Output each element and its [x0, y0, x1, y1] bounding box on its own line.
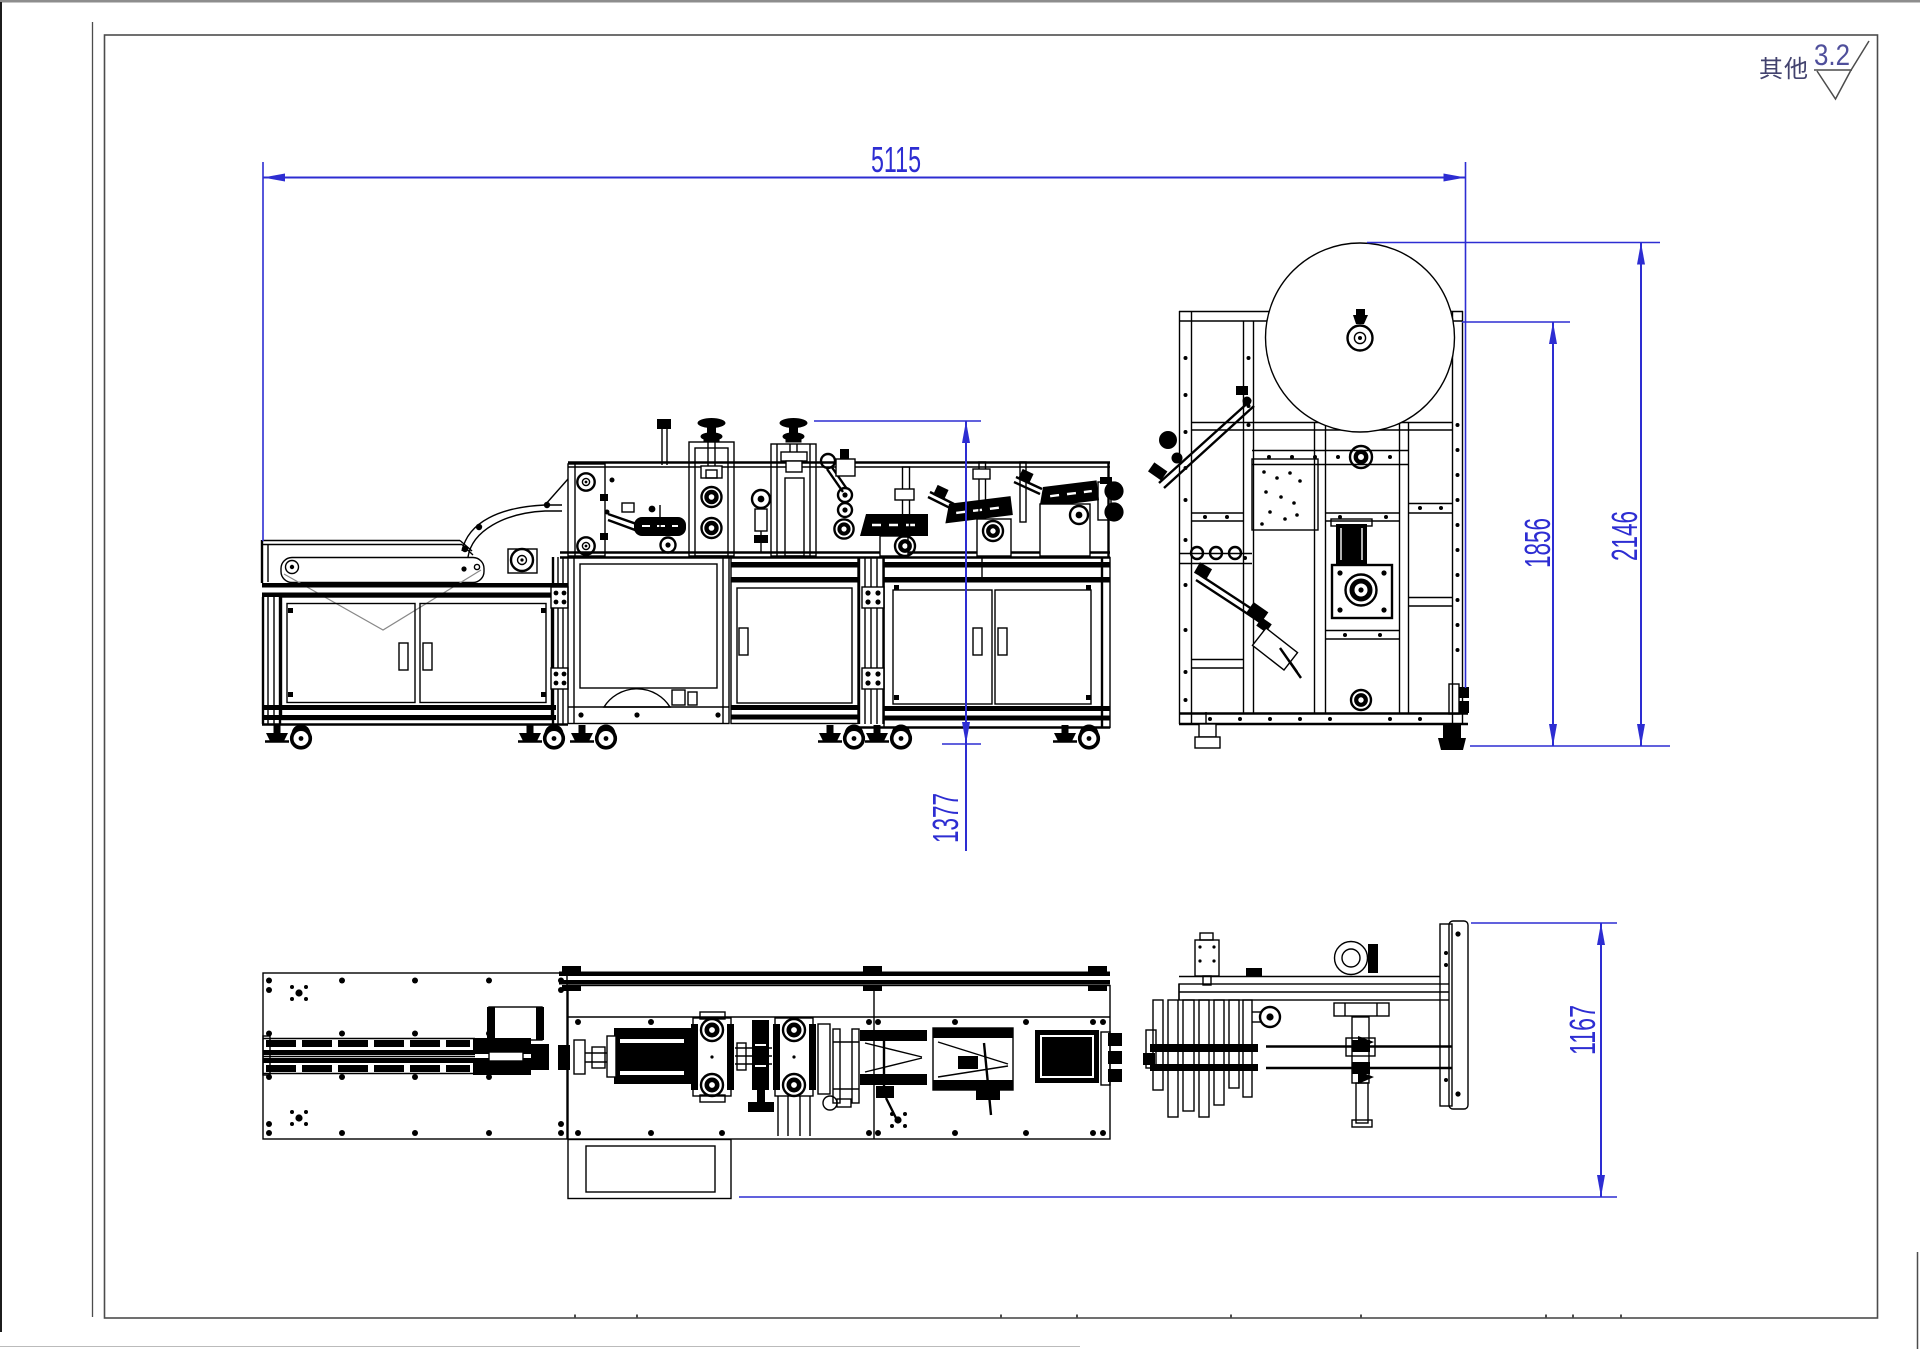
svg-text:2146: 2146 [1604, 511, 1645, 561]
svg-text:5115: 5115 [871, 139, 921, 180]
svg-text:3.2: 3.2 [1814, 39, 1850, 72]
svg-text:其他: 其他 [1759, 56, 1809, 83]
svg-text:1856: 1856 [1517, 518, 1558, 568]
svg-text:1377: 1377 [925, 793, 966, 843]
svg-text:1167: 1167 [1562, 1005, 1603, 1055]
